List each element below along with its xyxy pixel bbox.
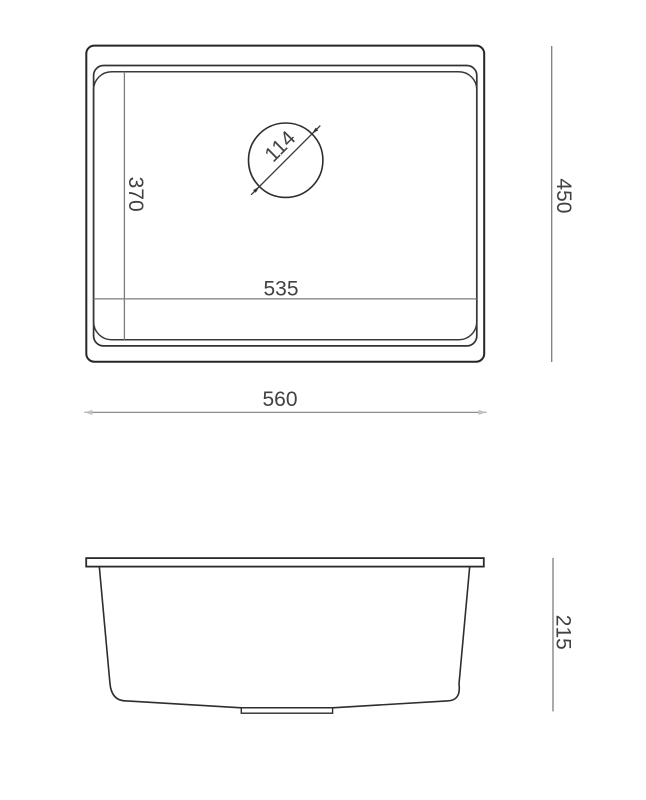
svg-text:215: 215 xyxy=(552,615,575,650)
svg-text:560: 560 xyxy=(262,388,297,411)
svg-text:450: 450 xyxy=(552,178,575,213)
svg-text:370: 370 xyxy=(124,177,147,212)
svg-text:535: 535 xyxy=(263,278,298,301)
